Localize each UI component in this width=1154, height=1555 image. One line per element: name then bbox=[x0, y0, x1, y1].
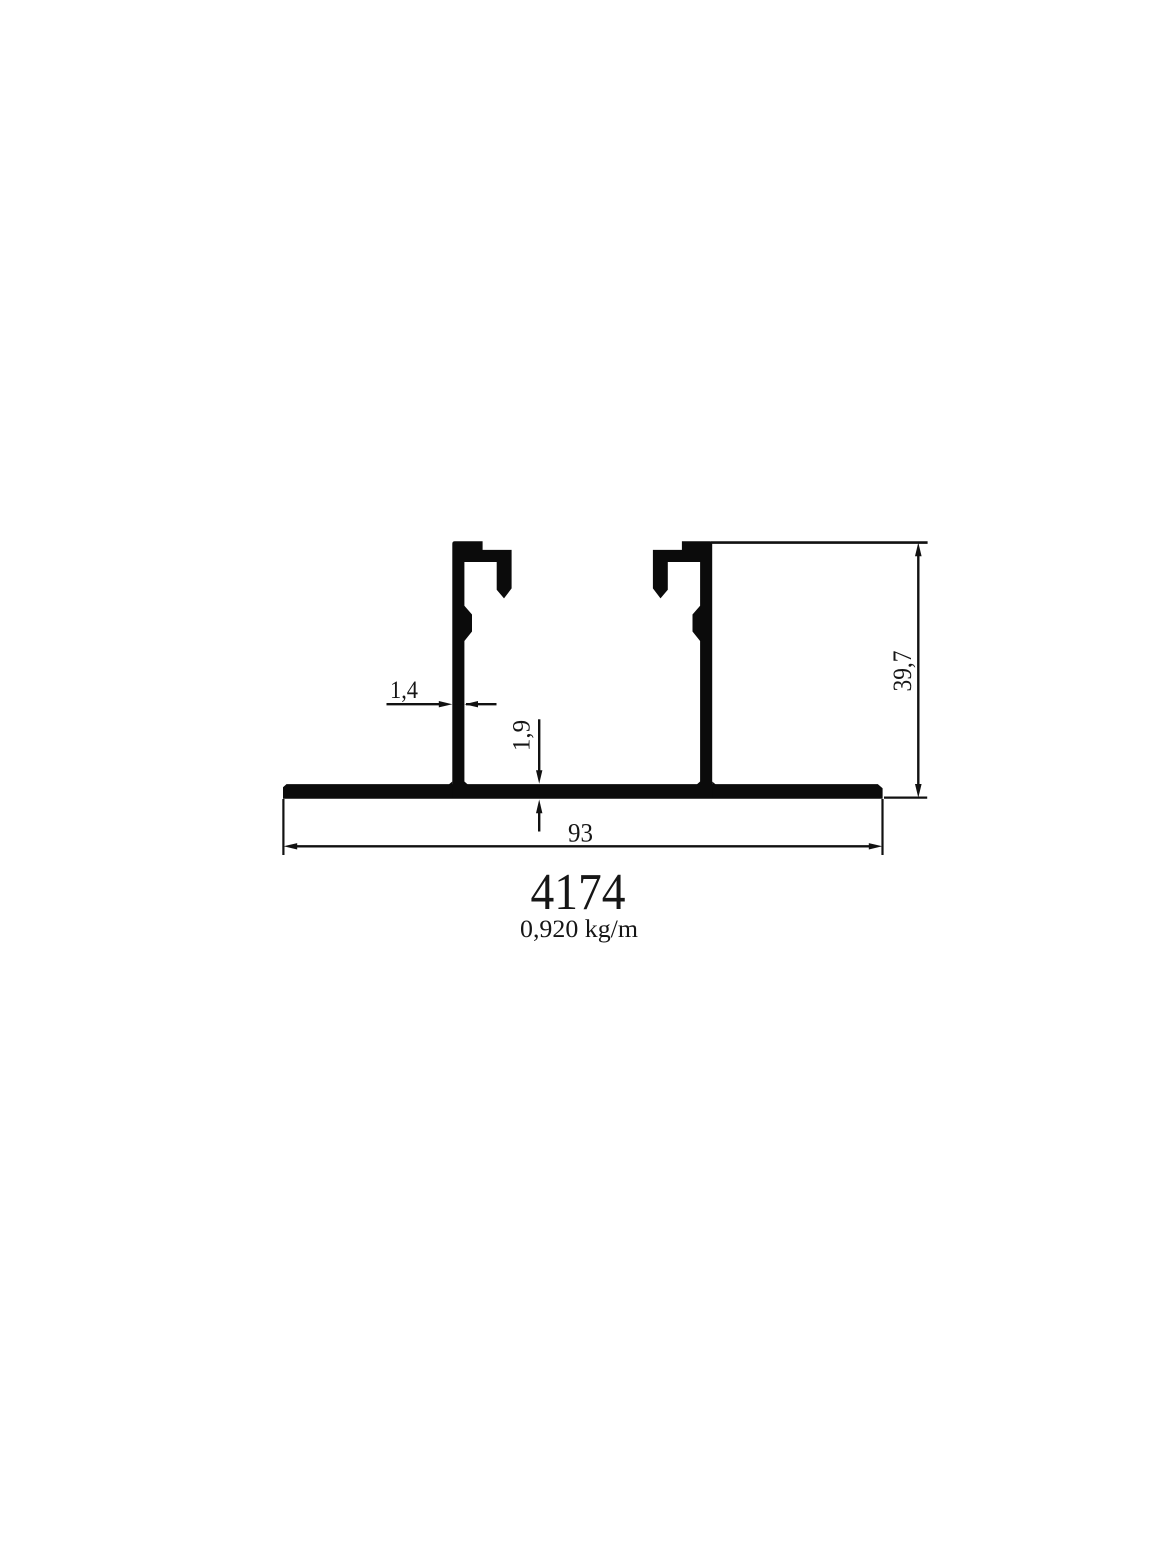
svg-text:1,4: 1,4 bbox=[390, 677, 418, 704]
svg-text:0,920 kg/m: 0,920 kg/m bbox=[520, 916, 639, 943]
svg-text:93: 93 bbox=[568, 819, 593, 848]
svg-text:4174: 4174 bbox=[531, 864, 626, 921]
svg-text:39,7: 39,7 bbox=[888, 651, 917, 692]
svg-text:1,9: 1,9 bbox=[509, 720, 536, 751]
